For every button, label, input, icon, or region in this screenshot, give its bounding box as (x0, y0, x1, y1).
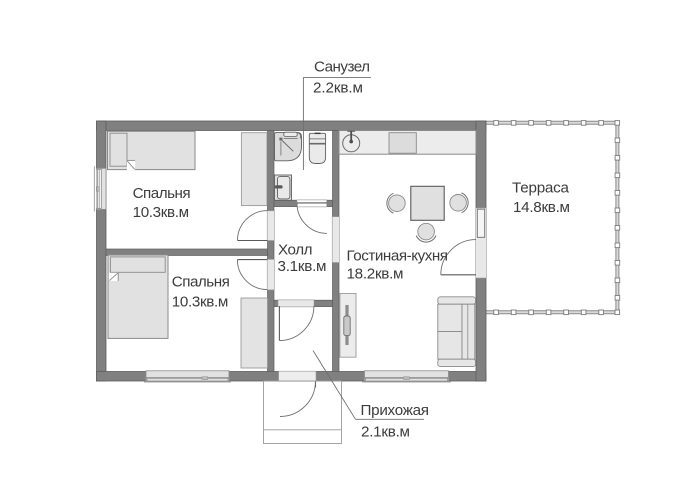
svg-text:Санузел: Санузел (314, 59, 370, 76)
svg-text:2.2кв.м: 2.2кв.м (313, 80, 363, 97)
svg-text:Терраса: Терраса (512, 180, 570, 197)
svg-text:Спальня: Спальня (172, 274, 230, 291)
svg-text:Гостиная-кухня: Гостиная-кухня (347, 247, 449, 264)
svg-text:2.1кв.м: 2.1кв.м (361, 424, 410, 441)
svg-text:3.1кв.м: 3.1кв.м (278, 258, 327, 275)
svg-text:Прихожая: Прихожая (361, 402, 430, 419)
svg-text:Холл: Холл (278, 241, 313, 258)
svg-text:18.2кв.м: 18.2кв.м (347, 266, 404, 283)
svg-text:Спальня: Спальня (133, 185, 191, 202)
svg-text:14.8кв.м: 14.8кв.м (513, 199, 570, 216)
svg-text:10.3кв.м: 10.3кв.м (133, 204, 190, 221)
svg-text:10.3кв.м: 10.3кв.м (172, 294, 229, 311)
